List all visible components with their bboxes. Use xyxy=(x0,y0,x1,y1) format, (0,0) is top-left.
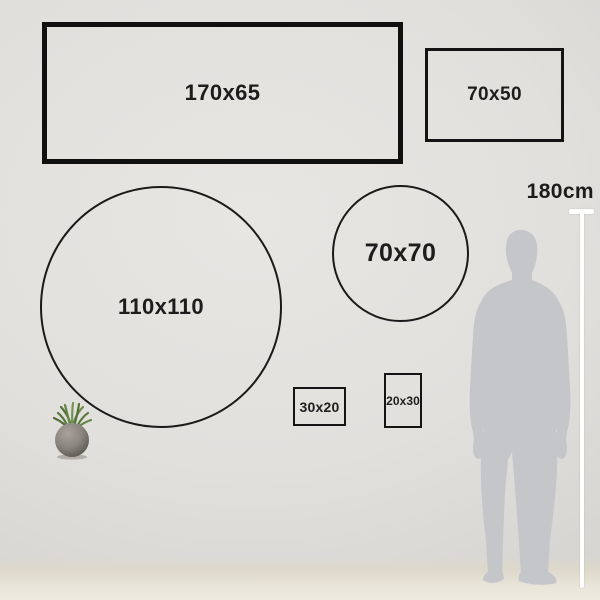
frame-170x65: 170x65 xyxy=(42,22,403,164)
frame-30x20: 30x20 xyxy=(293,387,346,426)
size-comparison-scene: 170x65 70x50 110x110 70x70 30x20 20x30 1… xyxy=(0,0,600,600)
frame-size-label: 70x70 xyxy=(365,239,437,268)
frame-size-label: 110x110 xyxy=(118,294,204,320)
plant-pot xyxy=(55,423,89,457)
height-measure-line xyxy=(580,211,584,588)
frame-70x70: 70x70 xyxy=(332,185,469,322)
person-torso xyxy=(477,280,564,429)
person-left-foot xyxy=(483,572,504,583)
frame-70x50: 70x50 xyxy=(425,48,564,142)
person-silhouette xyxy=(462,226,578,588)
potted-plant xyxy=(48,398,96,460)
person-right-foot xyxy=(519,572,557,585)
frame-20x30: 20x30 xyxy=(384,373,422,428)
person-legs xyxy=(481,427,557,574)
frame-size-label: 30x20 xyxy=(300,399,340,415)
frame-size-label: 70x50 xyxy=(467,84,522,106)
frame-size-label: 170x65 xyxy=(185,80,261,106)
frame-110x110: 110x110 xyxy=(40,186,282,428)
height-label: 180cm xyxy=(527,180,594,204)
frame-size-label: 20x30 xyxy=(386,394,420,408)
